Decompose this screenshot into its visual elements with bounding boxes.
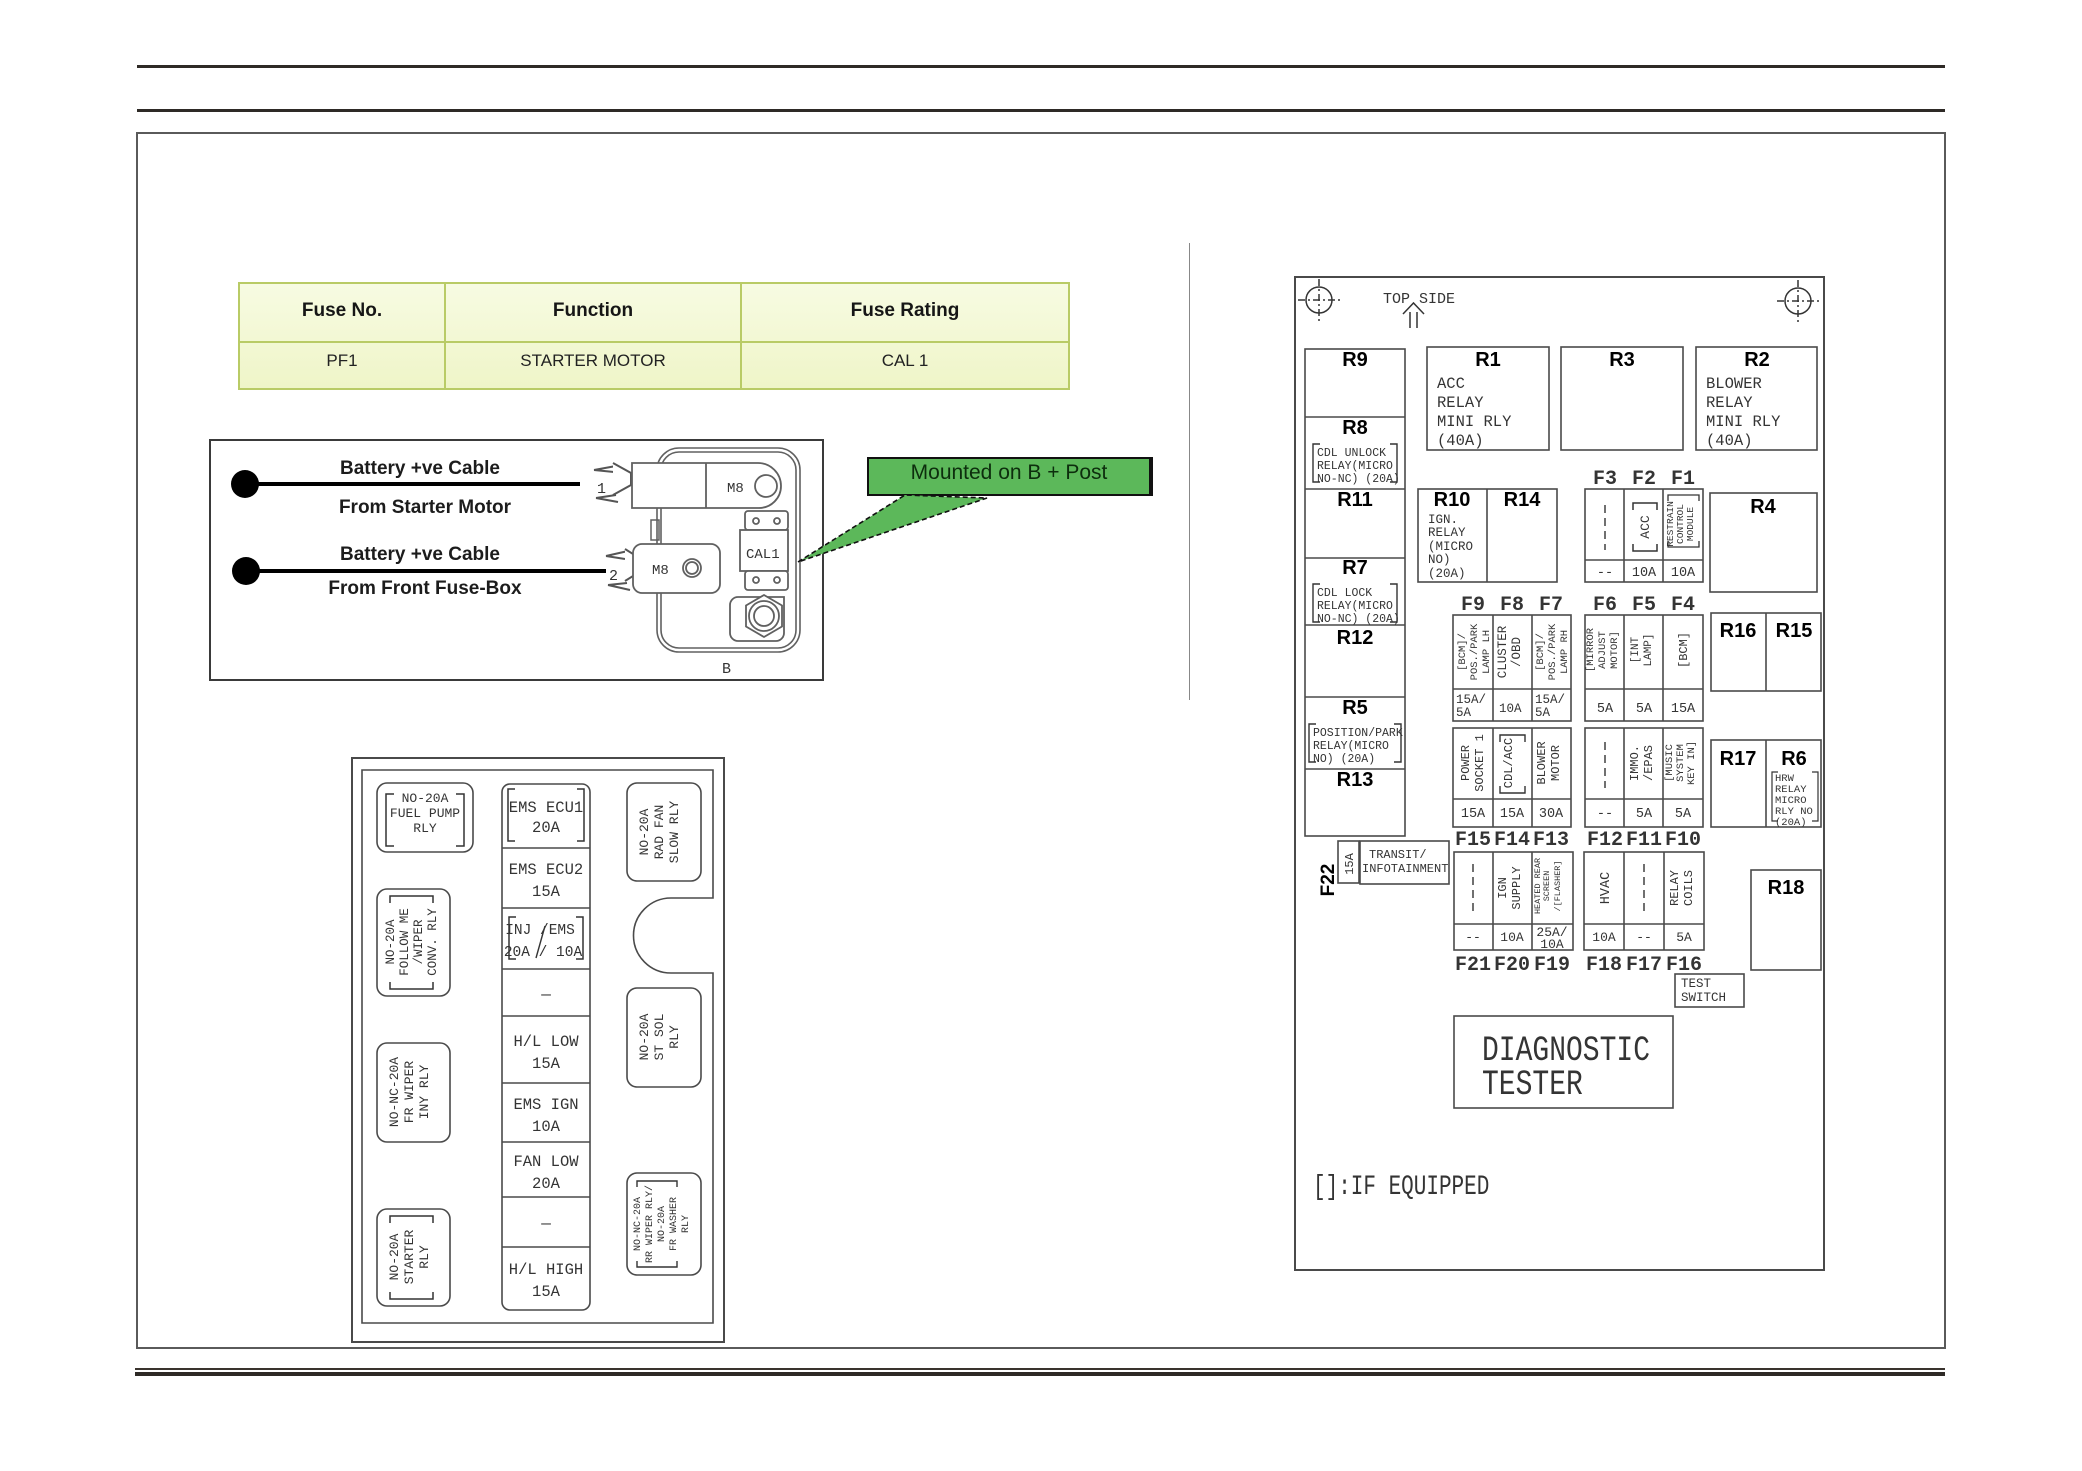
svg-text:ADJUST: ADJUST xyxy=(1597,631,1609,669)
svg-text:INJ /EMS: INJ /EMS xyxy=(505,923,575,939)
svg-text:HVAC: HVAC xyxy=(1599,872,1614,904)
svg-text:R8: R8 xyxy=(1342,417,1368,439)
svg-text:R5: R5 xyxy=(1342,697,1368,719)
svg-text:RELAY: RELAY xyxy=(1668,870,1682,906)
svg-text:R16: R16 xyxy=(1720,620,1757,642)
svg-text:5A: 5A xyxy=(1676,930,1692,945)
svg-text:F11: F11 xyxy=(1626,829,1662,852)
svg-text:H/L HIGH: H/L HIGH xyxy=(509,1261,583,1279)
svg-text:ACC: ACC xyxy=(1638,515,1653,539)
svg-text:R17: R17 xyxy=(1720,748,1757,770)
svg-text:IGN: IGN xyxy=(1496,877,1510,899)
svg-text:RELAY(MICRO: RELAY(MICRO xyxy=(1313,740,1389,753)
svg-text:15A: 15A xyxy=(1500,807,1525,822)
svg-text:15A/: 15A/ xyxy=(1456,693,1486,707)
svg-text:1: 1 xyxy=(597,481,606,498)
svg-text:STARTER: STARTER xyxy=(402,1229,417,1284)
svg-text:15A: 15A xyxy=(1343,852,1357,874)
svg-text:MODULE: MODULE xyxy=(1685,507,1696,542)
svg-text:ST SOL: ST SOL xyxy=(652,1014,667,1061)
svg-text:CDL UNLOCK: CDL UNLOCK xyxy=(1317,447,1386,460)
svg-text:COILS: COILS xyxy=(1682,870,1696,906)
svg-text:[BCM]/: [BCM]/ xyxy=(1535,633,1547,671)
svg-text:F10: F10 xyxy=(1665,829,1701,852)
svg-text:—: — xyxy=(540,1215,551,1233)
svg-text:RELAY: RELAY xyxy=(1428,526,1466,540)
svg-text:TRANSIT/: TRANSIT/ xyxy=(1369,848,1427,862)
svg-text:RELAY: RELAY xyxy=(1437,394,1484,412)
svg-text:H/L LOW: H/L LOW xyxy=(513,1033,579,1051)
svg-text:MOTOR]: MOTOR] xyxy=(1609,631,1621,669)
svg-text:NO-NC) (20A): NO-NC) (20A) xyxy=(1317,613,1400,626)
svg-text:TEST: TEST xyxy=(1681,977,1712,991)
svg-text:F19: F19 xyxy=(1534,954,1570,977)
svg-text:15A: 15A xyxy=(1671,702,1696,717)
svg-text:10A: 10A xyxy=(1500,930,1524,945)
svg-text:20A: 20A xyxy=(532,1175,561,1193)
svg-text:SOCKET 1: SOCKET 1 xyxy=(1473,734,1487,792)
svg-text:20A / 10A: 20A / 10A xyxy=(504,945,583,961)
svg-text:LAMP]: LAMP] xyxy=(1643,633,1655,666)
svg-text:5A: 5A xyxy=(1636,807,1653,822)
svg-text:IMMO.: IMMO. xyxy=(1628,745,1642,781)
svg-text:FAN LOW: FAN LOW xyxy=(513,1153,579,1171)
svg-text:RAD FAN: RAD FAN xyxy=(652,805,667,860)
svg-text:15A: 15A xyxy=(532,1055,561,1073)
svg-text:10A: 10A xyxy=(1592,930,1616,945)
svg-text:F6: F6 xyxy=(1593,594,1617,617)
svg-text:FOLLOW ME: FOLLOW ME xyxy=(398,908,412,976)
svg-text:NO-20A: NO-20A xyxy=(402,791,449,806)
svg-text:FR WIPER: FR WIPER xyxy=(402,1061,417,1124)
svg-text:NO) (20A): NO) (20A) xyxy=(1313,753,1375,766)
svg-text:ACC: ACC xyxy=(1437,375,1465,393)
svg-text:F13: F13 xyxy=(1533,829,1569,852)
svg-text:R1: R1 xyxy=(1475,349,1501,371)
svg-text:F1: F1 xyxy=(1671,468,1695,491)
svg-text:R14: R14 xyxy=(1504,489,1542,511)
svg-text:SUPPLY: SUPPLY xyxy=(1510,866,1524,909)
svg-text:EMS IGN: EMS IGN xyxy=(513,1096,578,1114)
svg-text:15A: 15A xyxy=(532,1283,561,1301)
svg-text:RELAY(MICRO: RELAY(MICRO xyxy=(1317,600,1393,613)
svg-text:10A: 10A xyxy=(1499,702,1522,716)
svg-text:(MICRO: (MICRO xyxy=(1428,540,1473,554)
svg-text:SWITCH: SWITCH xyxy=(1681,991,1726,1005)
svg-text:LAMP RH: LAMP RH xyxy=(1559,630,1571,674)
svg-text:SCREEN: SCREEN xyxy=(1542,871,1552,902)
svg-text:2: 2 xyxy=(609,568,618,585)
svg-text:F12: F12 xyxy=(1587,829,1623,852)
svg-text:(40A): (40A) xyxy=(1706,432,1753,450)
svg-text:M8: M8 xyxy=(727,481,744,497)
svg-text:RELAY: RELAY xyxy=(1706,394,1753,412)
svg-text:F14: F14 xyxy=(1494,829,1530,852)
svg-text:F7: F7 xyxy=(1539,594,1563,617)
svg-text:RLY: RLY xyxy=(667,1025,682,1049)
svg-text:5A: 5A xyxy=(1636,702,1653,717)
svg-text:/[FLASHER]: /[FLASHER] xyxy=(1553,860,1563,911)
svg-text:MINI RLY: MINI RLY xyxy=(1437,413,1512,431)
svg-text:POS./PARK: POS./PARK xyxy=(1547,623,1559,680)
svg-text:TOP SIDE: TOP SIDE xyxy=(1383,291,1455,308)
svg-text:10A: 10A xyxy=(532,1118,561,1136)
svg-text:SLOW RLY: SLOW RLY xyxy=(667,801,682,864)
svg-text:NO-20A: NO-20A xyxy=(637,808,652,855)
svg-text:NO-NC-20A: NO-NC-20A xyxy=(387,1057,402,1127)
svg-text:NO): NO) xyxy=(1428,553,1451,567)
svg-text:20A: 20A xyxy=(532,819,561,837)
svg-text:RLY: RLY xyxy=(413,821,437,836)
svg-text:RELAY(MICRO: RELAY(MICRO xyxy=(1317,460,1393,473)
svg-text:MINI RLY: MINI RLY xyxy=(1706,413,1781,431)
svg-text:CDL LOCK: CDL LOCK xyxy=(1317,587,1372,600)
svg-text:15A/: 15A/ xyxy=(1535,693,1565,707)
svg-text:F17: F17 xyxy=(1626,954,1662,977)
svg-text:R15: R15 xyxy=(1776,620,1813,642)
svg-text:M8: M8 xyxy=(652,563,669,579)
svg-text:10A: 10A xyxy=(1671,566,1696,581)
svg-text:F20: F20 xyxy=(1494,954,1530,977)
svg-text:NO-NC-20A: NO-NC-20A xyxy=(633,1197,644,1251)
svg-text:5A: 5A xyxy=(1456,706,1472,720)
svg-text:NO-20A: NO-20A xyxy=(637,1013,652,1060)
svg-text:/WIPER: /WIPER xyxy=(412,919,426,965)
svg-text:POSITION/PARK: POSITION/PARK xyxy=(1313,727,1403,740)
svg-text:LAMP LH: LAMP LH xyxy=(1481,630,1493,674)
svg-text:F22: F22 xyxy=(1318,864,1339,897)
svg-text:R13: R13 xyxy=(1337,769,1374,791)
svg-text:RLY: RLY xyxy=(681,1215,692,1233)
svg-text:R3: R3 xyxy=(1609,349,1635,371)
svg-text:INY RLY: INY RLY xyxy=(417,1064,432,1119)
svg-text:FR WASHER: FR WASHER xyxy=(669,1197,680,1251)
svg-text:F9: F9 xyxy=(1461,594,1485,617)
svg-text:5A: 5A xyxy=(1675,807,1692,822)
svg-text:(20A): (20A) xyxy=(1775,817,1807,829)
svg-text:F3: F3 xyxy=(1593,468,1617,491)
svg-text:[INT: [INT xyxy=(1630,636,1642,663)
svg-text:R2: R2 xyxy=(1744,349,1770,371)
svg-text:KEY IN]: KEY IN] xyxy=(1686,741,1698,785)
svg-text:CDL/ACC: CDL/ACC xyxy=(1502,738,1516,788)
svg-text:/OBD: /OBD xyxy=(1510,637,1524,667)
svg-text:R7: R7 xyxy=(1342,557,1368,579)
svg-text:MOTOR: MOTOR xyxy=(1549,745,1563,781)
svg-text:5A: 5A xyxy=(1597,702,1614,717)
svg-text:5A: 5A xyxy=(1535,706,1551,720)
svg-text:--: -- xyxy=(1597,566,1613,581)
svg-text:TESTER: TESTER xyxy=(1482,1065,1583,1105)
svg-text:10A: 10A xyxy=(1540,937,1564,952)
svg-text:/EPAS: /EPAS xyxy=(1642,745,1656,781)
svg-text:[BCM]/: [BCM]/ xyxy=(1457,633,1469,671)
svg-text:CAL1: CAL1 xyxy=(746,547,780,563)
svg-text:F5: F5 xyxy=(1632,594,1656,617)
svg-text:30A: 30A xyxy=(1539,807,1564,822)
svg-text:R12: R12 xyxy=(1337,627,1374,649)
svg-text:10A: 10A xyxy=(1632,566,1657,581)
svg-text:RLY: RLY xyxy=(417,1245,432,1269)
svg-text:R9: R9 xyxy=(1342,349,1368,371)
svg-text:NO-20A: NO-20A xyxy=(384,919,398,965)
svg-text:CLUSTER: CLUSTER xyxy=(1496,625,1510,678)
svg-text:F18: F18 xyxy=(1586,954,1622,977)
svg-text:BLOWER: BLOWER xyxy=(1535,741,1549,784)
svg-text:[MIRROR: [MIRROR xyxy=(1585,627,1597,672)
svg-text:[BCM]: [BCM] xyxy=(1677,632,1691,668)
svg-text:NO-20A: NO-20A xyxy=(387,1233,402,1280)
svg-text:R11: R11 xyxy=(1337,489,1373,511)
svg-text:--: -- xyxy=(1597,807,1613,822)
svg-text:[]:IF EQUIPPED: []:IF EQUIPPED xyxy=(1313,1173,1489,1203)
svg-text:EMS ECU1: EMS ECU1 xyxy=(509,799,583,817)
svg-text:FUEL PUMP: FUEL PUMP xyxy=(390,806,460,821)
svg-text:--: -- xyxy=(1636,930,1652,945)
svg-text:--: -- xyxy=(1465,930,1481,945)
svg-text:BLOWER: BLOWER xyxy=(1706,375,1762,393)
svg-text:F8: F8 xyxy=(1500,594,1524,617)
svg-text:R6: R6 xyxy=(1781,748,1807,770)
svg-text:(20A): (20A) xyxy=(1428,567,1466,581)
svg-text:F21: F21 xyxy=(1455,954,1491,977)
svg-text:F4: F4 xyxy=(1671,594,1695,617)
svg-text:—: — xyxy=(540,986,551,1004)
svg-text:INFOTAINMENT: INFOTAINMENT xyxy=(1362,862,1448,876)
svg-text:B: B xyxy=(722,661,731,678)
svg-text:15A: 15A xyxy=(532,883,561,901)
svg-text:IGN.: IGN. xyxy=(1428,513,1458,527)
svg-text:CONV. RLY: CONV. RLY xyxy=(426,908,440,976)
svg-text:F15: F15 xyxy=(1455,829,1491,852)
svg-text:F2: F2 xyxy=(1632,468,1656,491)
svg-text:POWER: POWER xyxy=(1459,745,1473,781)
svg-text:EMS ECU2: EMS ECU2 xyxy=(509,861,583,879)
svg-text:(40A): (40A) xyxy=(1437,432,1484,450)
svg-text:R18: R18 xyxy=(1768,877,1805,899)
svg-text:NO-NC) (20A): NO-NC) (20A) xyxy=(1317,473,1400,486)
svg-text:NO-20A: NO-20A xyxy=(657,1206,668,1242)
svg-text:R10: R10 xyxy=(1434,489,1471,511)
svg-text:R4: R4 xyxy=(1750,496,1776,518)
svg-text:15A: 15A xyxy=(1461,807,1486,822)
svg-text:RR WIPER RLY/: RR WIPER RLY/ xyxy=(644,1185,656,1263)
svg-text:POS./PARK: POS./PARK xyxy=(1469,623,1481,680)
